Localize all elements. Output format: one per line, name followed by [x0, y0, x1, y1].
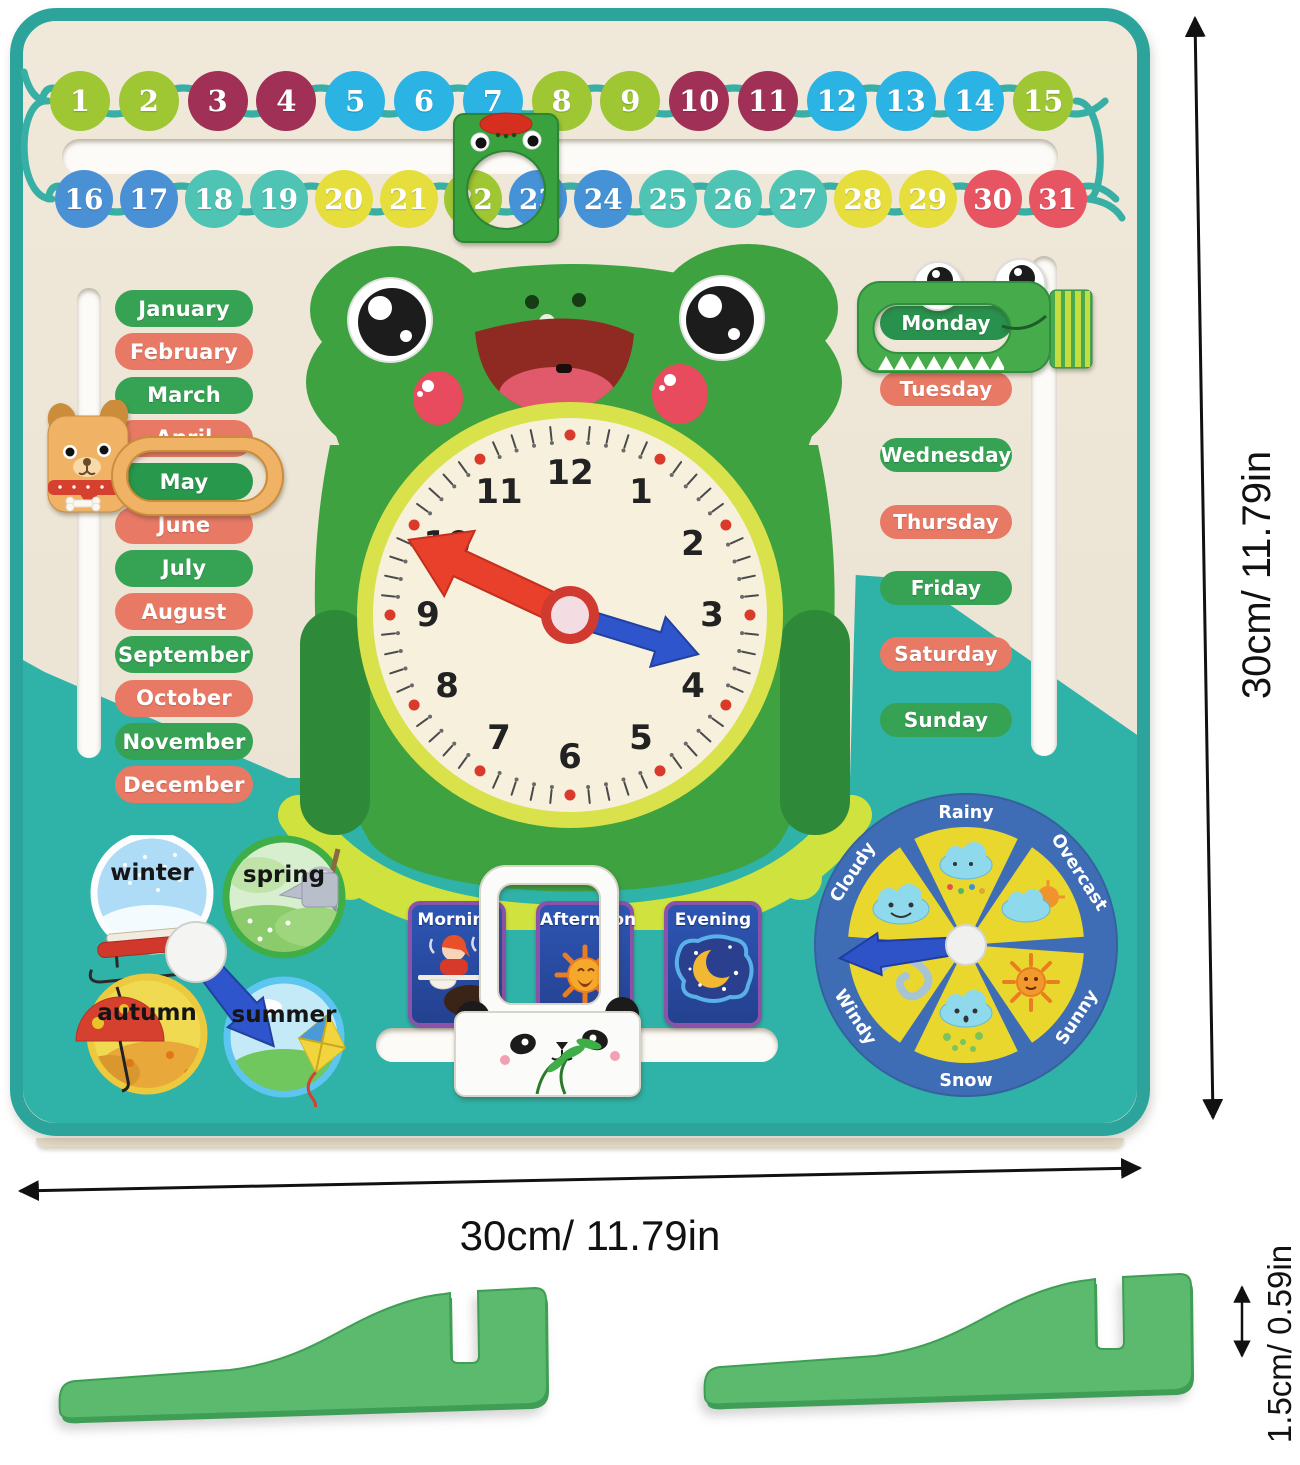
weather-label-snow: Snow [939, 1071, 992, 1091]
date-18: 18 [185, 170, 243, 228]
clock-number-9: 9 [416, 595, 440, 635]
card-evening: Evening [664, 901, 762, 1027]
date-21: 21 [380, 170, 438, 228]
season-label-summer: summer [222, 1002, 346, 1028]
date-16: 16 [55, 170, 113, 228]
width-dimension-arrow [20, 1168, 1140, 1191]
date-15: 15 [1013, 71, 1073, 131]
frog-slider-cap [480, 113, 532, 135]
season-pointer-hub[interactable] [166, 922, 226, 982]
frog-nostril [525, 295, 539, 309]
frog-right-eye-icon [680, 276, 764, 360]
season-label-winter: winter [90, 860, 214, 886]
season-label-spring: spring [222, 862, 346, 888]
board-bottom-edge [36, 1138, 1124, 1147]
thickness-dimension-label: 1.5cm/ 0.59in [1261, 1146, 1300, 1465]
date-2: 2 [119, 71, 179, 131]
date-9: 9 [600, 71, 660, 131]
weather-pointer-hub[interactable] [946, 925, 986, 965]
moon-icon [668, 929, 758, 1021]
dog-month-slider[interactable] [40, 400, 290, 520]
date-5: 5 [325, 71, 385, 131]
date-12: 12 [807, 71, 867, 131]
weather-label-rainy: Rainy [938, 803, 994, 823]
date-25: 25 [639, 170, 697, 228]
date-3: 3 [188, 71, 248, 131]
day-sunday: Sunday [880, 703, 1012, 737]
month-january: January [115, 290, 253, 327]
wooden-stands [30, 1262, 1280, 1462]
date-10: 10 [669, 71, 729, 131]
date-6: 6 [394, 71, 454, 131]
date-19: 19 [250, 170, 308, 228]
date-30: 30 [964, 170, 1022, 228]
card-evening-label: Evening [668, 910, 758, 930]
clock-number-1: 1 [629, 472, 653, 512]
clock-number-7: 7 [487, 718, 511, 758]
day-friday: Friday [880, 571, 1012, 605]
clock-number-12: 12 [546, 453, 593, 493]
month-slider-slot [77, 288, 101, 758]
panda-slider-frame [480, 866, 618, 1022]
clock-number-6: 6 [558, 737, 582, 777]
month-november: November [115, 723, 253, 760]
panda-time-slider[interactable] [445, 856, 655, 1106]
date-14: 14 [944, 71, 1004, 131]
height-dimension-label: 30cm/ 11.79in [1235, 375, 1281, 775]
frog-left-eye-icon [348, 278, 432, 362]
learning-clock: 123456789101112 [350, 395, 790, 835]
weather-wheel: Rainy Overcast Sunny Snow Windy Cloudy [805, 785, 1135, 1115]
date-24: 24 [574, 170, 632, 228]
sunny-icon [1004, 955, 1058, 1010]
clock-number-4: 4 [681, 666, 705, 706]
date-4: 4 [256, 71, 316, 131]
clock-number-5: 5 [629, 718, 653, 758]
date-20: 20 [315, 170, 373, 228]
crocodile-day-slider[interactable] [850, 256, 1095, 381]
date-31: 31 [1029, 170, 1087, 228]
month-august: August [115, 593, 253, 630]
clock-number-8: 8 [435, 666, 459, 706]
day-saturday: Saturday [880, 637, 1012, 671]
dog-slider-frame [112, 437, 283, 515]
clock-number-2: 2 [681, 524, 705, 564]
stand-right [705, 1274, 1192, 1404]
month-september: September [115, 636, 253, 673]
day-thursday: Thursday [880, 505, 1012, 539]
date-13: 13 [876, 71, 936, 131]
product-photo: 123456789101112 [0, 0, 1300, 1465]
season-label-autumn: autumn [85, 1000, 209, 1026]
spring-circle-icon [213, 839, 355, 957]
month-october: October [115, 680, 253, 717]
day-wednesday: Wednesday [880, 438, 1012, 472]
date-17: 17 [120, 170, 178, 228]
clock-number-3: 3 [700, 595, 724, 635]
width-dimension-label: 30cm/ 11.79in [390, 1212, 790, 1260]
frog-nostril [572, 293, 586, 307]
date-26: 26 [704, 170, 762, 228]
stand-left [60, 1288, 547, 1418]
height-dimension-arrow [1195, 18, 1213, 1118]
date-28: 28 [834, 170, 892, 228]
month-december: December [115, 766, 253, 803]
frog-date-slider[interactable] [448, 108, 568, 248]
date-29: 29 [899, 170, 957, 228]
month-july: July [115, 550, 253, 587]
clock-number-11: 11 [475, 472, 522, 512]
date-1: 1 [50, 71, 110, 131]
autumn-circle-icon [76, 977, 216, 1093]
date-27: 27 [769, 170, 827, 228]
month-february: February [115, 333, 253, 370]
date-11: 11 [738, 71, 798, 131]
